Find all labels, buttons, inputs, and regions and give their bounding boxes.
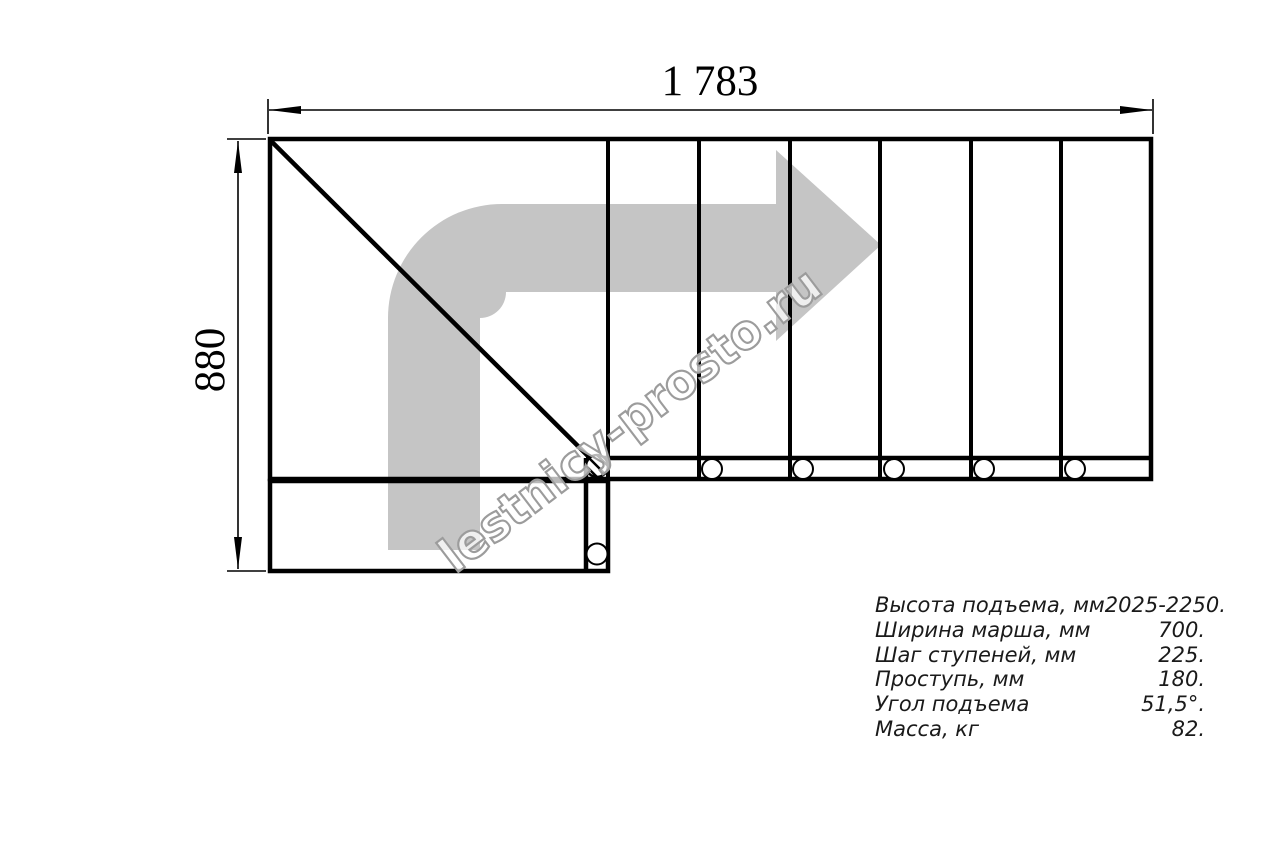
spec-value: 225.	[1158, 643, 1205, 668]
fastener-circle	[587, 544, 608, 565]
spec-value: 51,5°.	[1141, 692, 1205, 717]
dimension-arrowhead-left	[269, 106, 301, 114]
spec-row-step-pitch: Шаг ступеней, мм 225.	[875, 643, 1205, 668]
spec-label: Ширина марша, мм	[875, 618, 1091, 643]
stair-plan-screenshot: 1 783 880 lestnicy-prosto.ru Высота подъ…	[0, 0, 1280, 853]
dimension-arrowhead-down	[234, 537, 242, 569]
specs-table: Высота подъема, мм 2025-2250. Ширина мар…	[875, 593, 1205, 742]
dimension-width-value: 1 783	[662, 58, 759, 105]
dimension-annotations	[227, 99, 1153, 571]
fastener-circle	[974, 459, 994, 479]
spec-row-flight-width: Ширина марша, мм 700.	[875, 618, 1205, 643]
spec-row-angle: Угол подъема 51,5°.	[875, 692, 1205, 717]
fastener-circle	[702, 459, 722, 479]
spec-value: 82.	[1172, 717, 1205, 742]
dimension-arrowhead-right	[1120, 106, 1152, 114]
spec-row-tread: Проступь, мм 180.	[875, 667, 1205, 692]
spec-label: Шаг ступеней, мм	[875, 643, 1076, 668]
fastener-circles	[587, 459, 1086, 565]
dimension-arrowhead-up	[234, 141, 242, 173]
dimension-height-value: 880	[187, 328, 234, 393]
spec-value: 2025-2250.	[1105, 593, 1226, 618]
spec-label: Высота подъема, мм	[875, 593, 1105, 618]
spec-value: 180.	[1158, 667, 1205, 692]
fastener-circle	[884, 459, 904, 479]
direction-arrow-icon	[388, 150, 881, 550]
spec-label: Угол подъема	[875, 692, 1029, 717]
spec-value: 700.	[1158, 618, 1205, 643]
spec-row-mass: Масса, кг 82.	[875, 717, 1205, 742]
fastener-circle	[1065, 459, 1085, 479]
spec-label: Проступь, мм	[875, 667, 1024, 692]
fastener-circle	[793, 459, 813, 479]
spec-label: Масса, кг	[875, 717, 979, 742]
spec-row-height: Высота подъема, мм 2025-2250.	[875, 593, 1205, 618]
